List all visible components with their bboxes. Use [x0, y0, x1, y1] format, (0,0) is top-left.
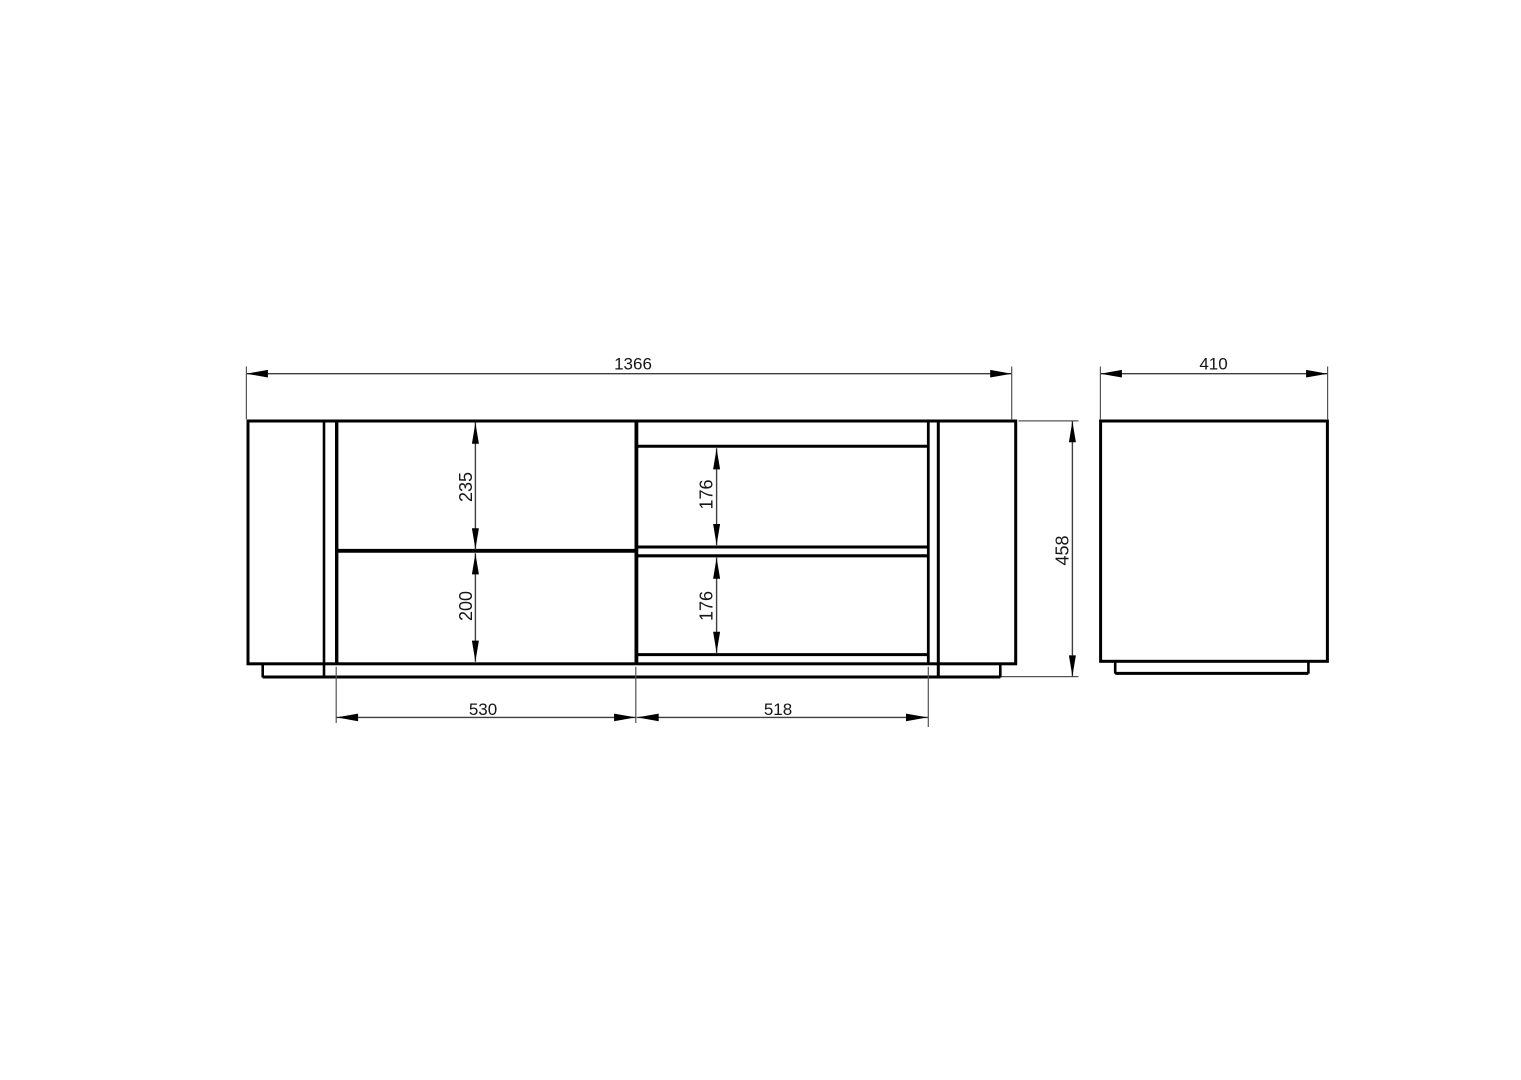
svg-text:200: 200	[456, 591, 476, 621]
svg-text:235: 235	[456, 472, 476, 502]
svg-text:1366: 1366	[614, 354, 652, 373]
svg-text:518: 518	[764, 700, 792, 719]
svg-text:410: 410	[1199, 354, 1227, 373]
svg-text:530: 530	[469, 700, 497, 719]
svg-text:458: 458	[1052, 535, 1072, 565]
svg-text:176: 176	[696, 591, 716, 621]
svg-text:176: 176	[696, 479, 716, 509]
